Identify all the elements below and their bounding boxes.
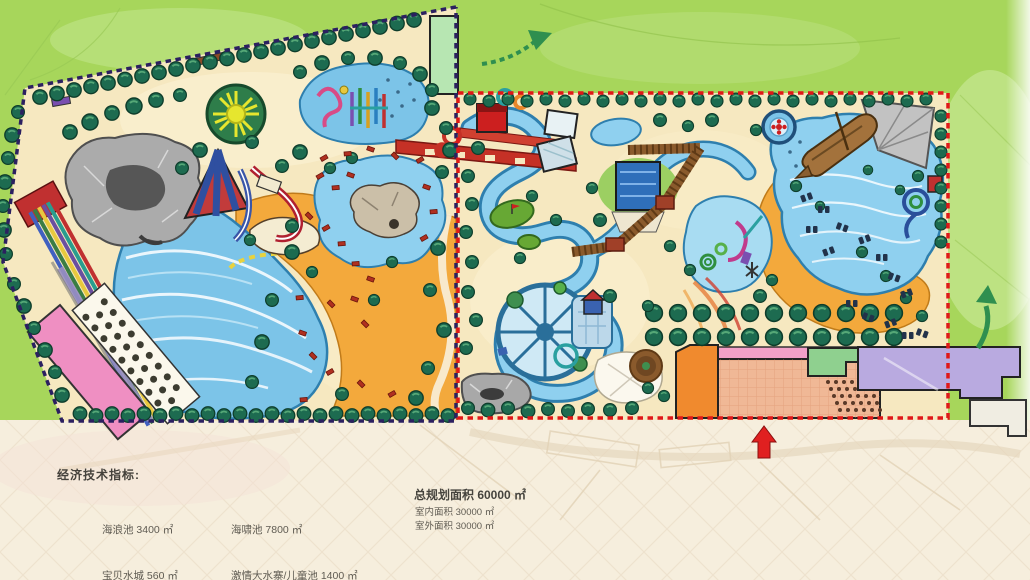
entrance-building-purple (858, 347, 1020, 398)
legend-item: 宝贝水城 560 ㎡ (102, 569, 194, 580)
legend-item: 海啸池 7800 ㎡ (231, 523, 358, 538)
legend-total-area: 总规划面积 60000 ㎡ (414, 486, 526, 503)
legend-column-2: 海啸池 7800 ㎡ 激情大水寨/儿童池 1400 ㎡ (231, 492, 358, 580)
water-park-master-plan: 经济技术指标: 海浪池 3400 ㎡ 宝贝水城 560 ㎡ 中型水寨池 950 … (0, 0, 1030, 580)
greenhouse-building (430, 16, 458, 94)
legend-item: 海浪池 3400 ㎡ (102, 523, 194, 538)
legend-column-1: 海浪池 3400 ㎡ 宝贝水城 560 ㎡ 中型水寨池 950 ㎡ 漂流河长 5… (102, 492, 194, 580)
surf-rock-mountain (65, 134, 202, 246)
wood-deck (630, 350, 662, 382)
spa-pool (763, 111, 795, 143)
kids-play-pool (300, 63, 429, 144)
east-parcel (396, 90, 1026, 436)
legend-indoor-area: 室内面积 30000 ㎡ (415, 504, 494, 518)
sun-wheel (207, 85, 265, 143)
entrance-building-orange (676, 345, 718, 418)
children-pool (684, 196, 772, 292)
legend-outdoor-area: 室外面积 30000 ㎡ (415, 518, 494, 532)
legend-item: 激情大水寨/儿童池 1400 ㎡ (231, 569, 358, 580)
legend-title: 经济技术指标: (57, 466, 140, 483)
